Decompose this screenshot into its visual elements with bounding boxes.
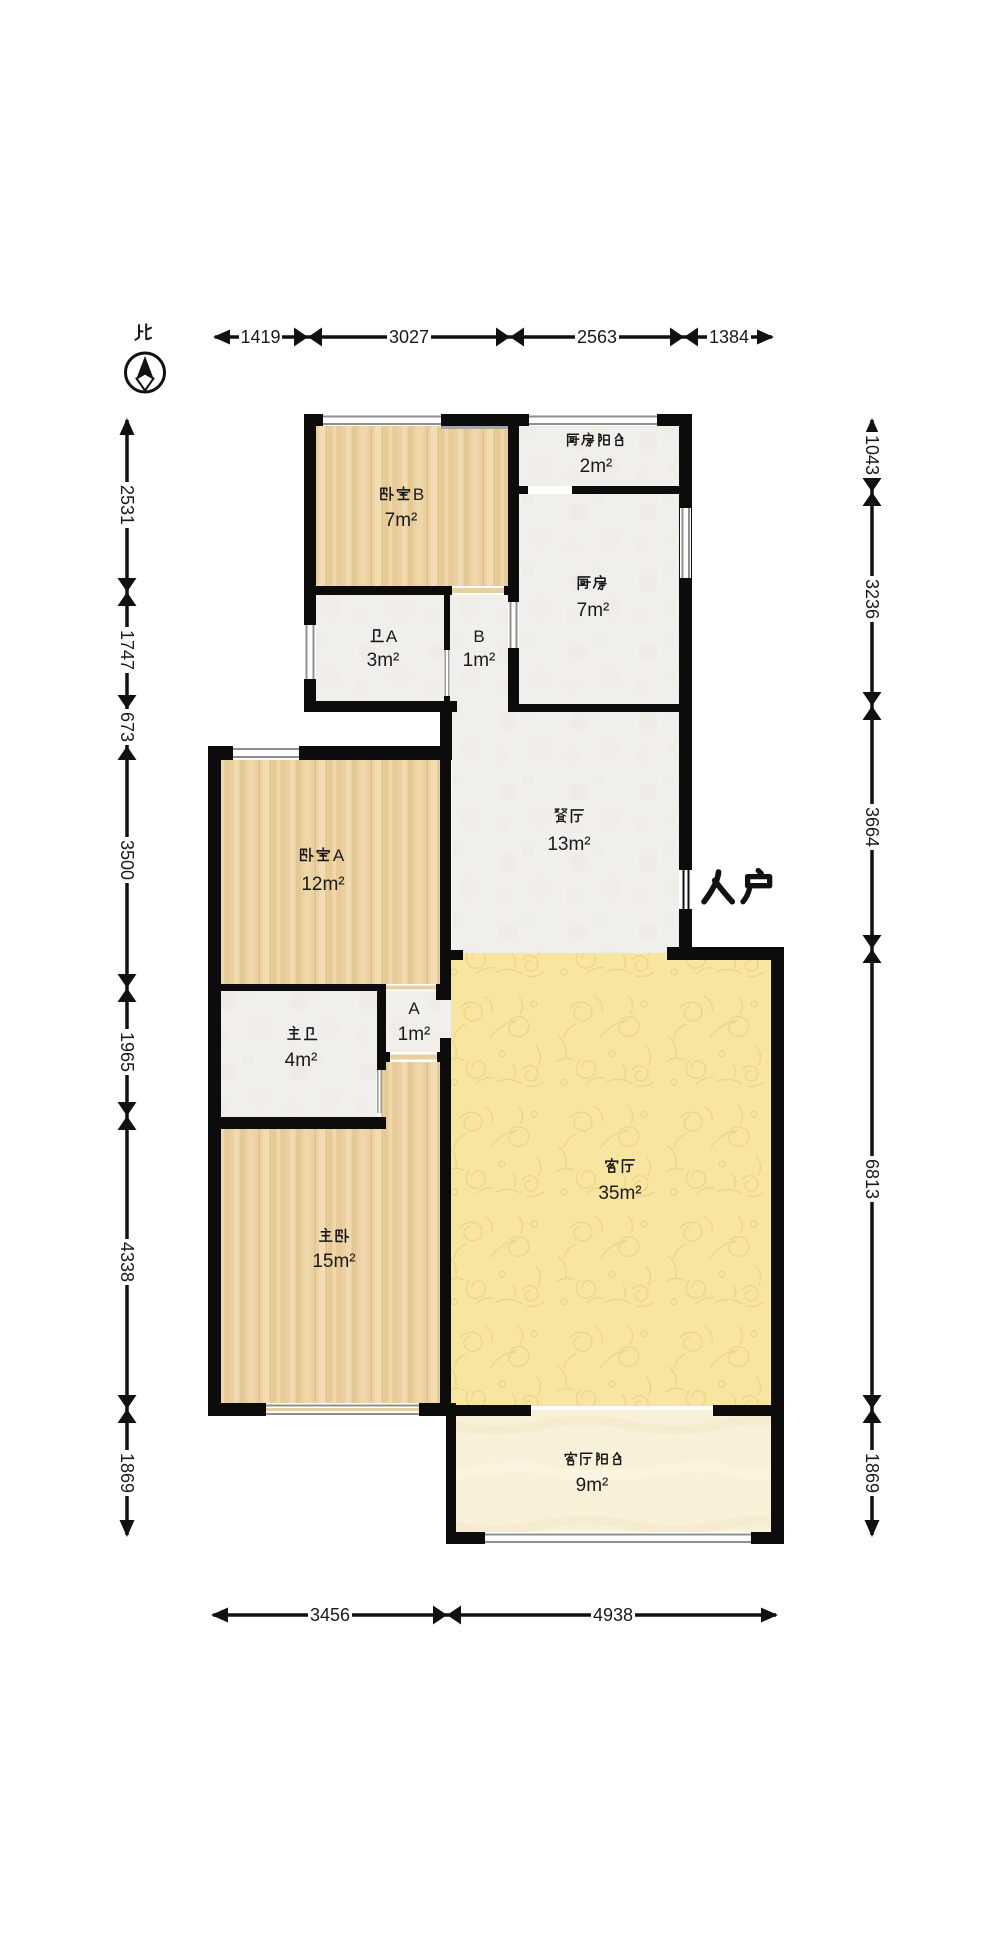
svg-text:673: 673 <box>117 712 137 742</box>
svg-text:3664: 3664 <box>862 807 882 847</box>
svg-text:B: B <box>473 627 484 646</box>
svg-text:1965: 1965 <box>117 1032 137 1072</box>
svg-text:4m²: 4m² <box>285 1050 318 1071</box>
svg-text:15m²: 15m² <box>312 1251 355 1272</box>
svg-text:3236: 3236 <box>862 579 882 619</box>
svg-text:12m²: 12m² <box>301 874 344 895</box>
svg-text:3027: 3027 <box>389 327 429 347</box>
svg-text:4938: 4938 <box>593 1605 633 1625</box>
svg-text:1869: 1869 <box>117 1453 137 1493</box>
svg-text:B: B <box>413 485 424 504</box>
svg-text:A: A <box>408 999 420 1018</box>
svg-text:A: A <box>333 846 345 865</box>
svg-text:13m²: 13m² <box>547 834 590 855</box>
svg-text:9m²: 9m² <box>576 1475 609 1496</box>
svg-text:35m²: 35m² <box>598 1183 641 1204</box>
svg-text:1747: 1747 <box>117 630 137 670</box>
svg-text:6813: 6813 <box>862 1159 882 1199</box>
svg-text:A: A <box>386 627 398 646</box>
svg-text:2563: 2563 <box>577 327 617 347</box>
svg-text:3500: 3500 <box>117 840 137 880</box>
svg-text:4338: 4338 <box>117 1242 137 1282</box>
svg-text:1384: 1384 <box>709 327 749 347</box>
svg-text:1419: 1419 <box>240 327 280 347</box>
svg-text:1043: 1043 <box>862 435 882 475</box>
svg-text:3456: 3456 <box>310 1605 350 1625</box>
svg-text:2m²: 2m² <box>580 456 613 477</box>
svg-text:7m²: 7m² <box>577 600 610 621</box>
svg-text:7m²: 7m² <box>385 510 418 531</box>
svg-text:1m²: 1m² <box>463 650 496 671</box>
svg-text:2531: 2531 <box>117 485 137 525</box>
svg-text:1869: 1869 <box>862 1453 882 1493</box>
svg-text:1m²: 1m² <box>398 1024 431 1045</box>
svg-text:3m²: 3m² <box>367 650 400 671</box>
